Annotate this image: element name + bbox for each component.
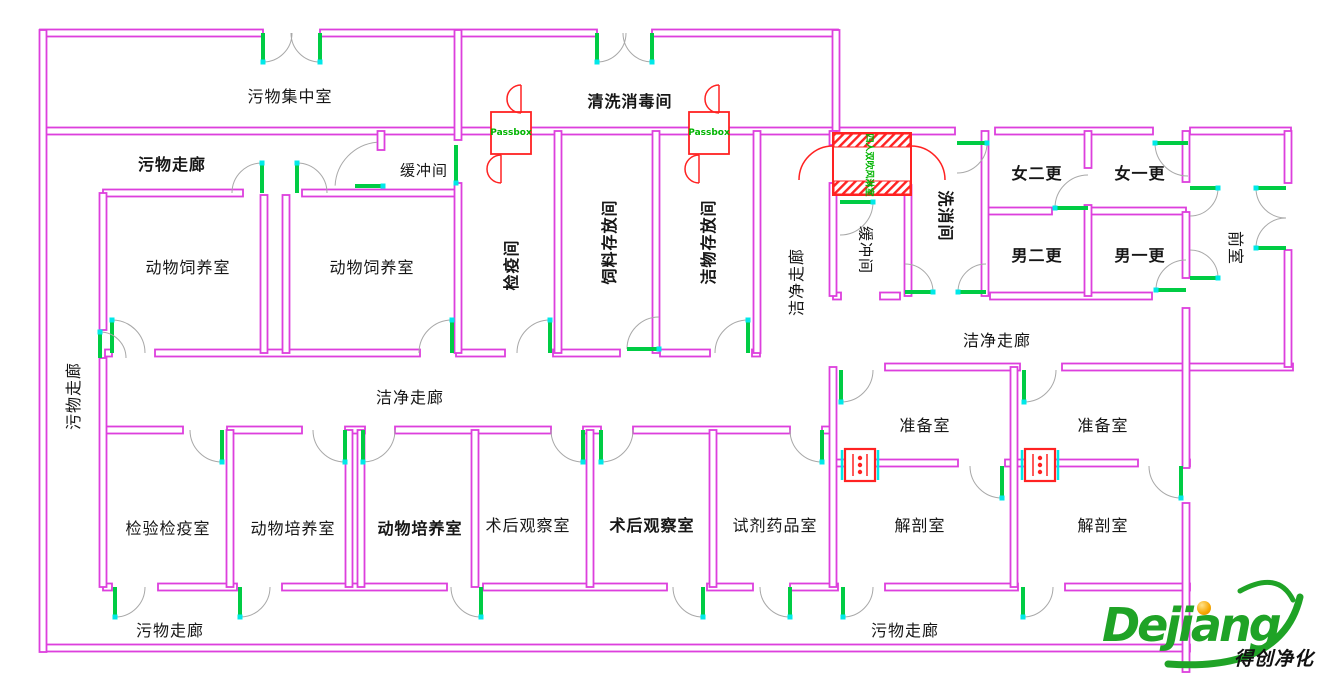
- wall-segment: [833, 30, 840, 131]
- transfer-window-dot: [858, 470, 862, 474]
- transfer-window-dot: [858, 463, 862, 467]
- door-swing-arc: [335, 142, 377, 185]
- door-leaf-tip: [318, 60, 323, 65]
- wall-segment: [40, 30, 47, 652]
- door-leaf-tip: [931, 290, 936, 295]
- wall-segment: [1183, 308, 1190, 468]
- wall-segment: [456, 350, 505, 357]
- wall-segment: [158, 584, 237, 591]
- wall-segment: [710, 430, 717, 587]
- wall-segment: [1285, 131, 1292, 183]
- corridor-label-waste-bottom-left: 污物走廊: [136, 617, 204, 641]
- door-leaf-tip: [595, 60, 600, 65]
- door-leaf-tip: [581, 460, 586, 465]
- door-swing-arc: [263, 33, 292, 62]
- door-swing-arc: [363, 430, 395, 462]
- door-leaf-tip: [956, 290, 961, 295]
- wall-segment: [990, 293, 1152, 300]
- door-leaf-tip: [381, 184, 386, 189]
- door-swing-arc: [297, 163, 327, 193]
- passbox-door-arc: [685, 155, 699, 183]
- room-label-dissection-1: 解剖室: [894, 512, 945, 536]
- wall-segment: [1085, 131, 1092, 168]
- door-leaf-tip: [1254, 246, 1259, 251]
- wall-segment: [1011, 367, 1018, 587]
- passbox-door-arc: [507, 85, 521, 113]
- door-swing-arc: [715, 320, 748, 353]
- wall-segment: [227, 430, 234, 587]
- wall-segment: [1183, 212, 1190, 278]
- door-leaf-tip: [261, 60, 266, 65]
- wall-segment: [1085, 205, 1092, 296]
- room-label-post-op-2: 术后观察室: [609, 512, 694, 536]
- door-leaf-tip: [260, 161, 265, 166]
- door-leaf-tip: [110, 318, 115, 323]
- door-swing-arc: [1256, 188, 1286, 218]
- transfer-window-dot: [1038, 456, 1042, 460]
- passbox-label-1: Passbox: [490, 128, 532, 138]
- door-swing-arc: [790, 430, 822, 462]
- door-leaf-tip: [599, 460, 604, 465]
- wall-segment: [472, 430, 479, 587]
- wall-segment: [40, 30, 263, 37]
- door-leaf-tip: [113, 615, 118, 620]
- door-leaf-tip: [650, 60, 655, 65]
- door-leaf-tip: [1000, 496, 1005, 501]
- wall-segment: [660, 350, 710, 357]
- wall-segment: [455, 183, 462, 353]
- wall-segment: [1183, 131, 1190, 182]
- room-label-animal-culture-1: 动物培养室: [250, 515, 335, 539]
- wall-segment: [261, 195, 268, 353]
- wall-segment: [653, 131, 660, 353]
- wall-segment: [830, 367, 837, 587]
- room-label-buffer-top: 缓冲间: [400, 160, 448, 181]
- logo-dot-icon: [1197, 601, 1211, 615]
- room-label-cleaning-disinfection: 清洗消毒间: [587, 88, 672, 112]
- door-leaf-tip: [98, 330, 103, 335]
- door-swing-arc: [190, 430, 222, 462]
- room-label-buffer-right: 缓冲间: [856, 226, 877, 274]
- door-leaf-tip: [1179, 496, 1184, 501]
- wall-segment: [1062, 364, 1293, 371]
- room-label-female-first-change: 女一更: [1114, 160, 1165, 184]
- wall-segment: [905, 185, 912, 296]
- wall-segment: [378, 131, 385, 150]
- door-leaf-tip: [479, 615, 484, 620]
- room-label-quarantine: 检疫间: [498, 239, 522, 290]
- corridor-label-waste-left: 污物走廊: [60, 362, 84, 430]
- wall-segment: [227, 427, 302, 434]
- wall-segment: [885, 364, 1020, 371]
- room-label-animal-breeding-1: 动物饲养室: [145, 254, 230, 278]
- wall-segment: [982, 131, 989, 296]
- room-label-male-first-change: 男一更: [1114, 242, 1165, 266]
- door-leaf-tip: [295, 161, 300, 166]
- room-label-animal-breeding-2: 动物饲养室: [329, 254, 414, 278]
- floor-plan: 污物集中室 清洗消毒间 污物走廊 缓冲间 动物饲养室 动物饲养室 检疫间 饲料存…: [0, 0, 1318, 675]
- door-leaf-tip: [238, 615, 243, 620]
- door-swing-arc: [240, 587, 270, 617]
- door-leaf-tip: [820, 460, 825, 465]
- door-leaf-tip: [839, 400, 844, 405]
- wall-segment: [754, 131, 761, 353]
- transfer-window-dot: [1038, 470, 1042, 474]
- wall-segment: [103, 190, 243, 197]
- door-leaf-tip: [871, 200, 876, 205]
- door-leaf-tip: [657, 347, 662, 352]
- door-leaf-tip: [343, 460, 348, 465]
- door-swing-arc: [970, 466, 1002, 498]
- door-swing-arc: [551, 430, 583, 462]
- door-swing-arc: [451, 587, 481, 617]
- door-leaf-tip: [548, 318, 553, 323]
- room-label-waste-collection: 污物集中室: [247, 83, 332, 107]
- wall-segment: [885, 584, 1018, 591]
- door-swing-arc: [1256, 218, 1286, 248]
- wall-segment: [1065, 584, 1190, 591]
- wall-segment: [100, 193, 107, 330]
- corridor-label-clean-vertical: 洁净走廊: [783, 248, 807, 316]
- wall-segment: [1285, 250, 1292, 367]
- door-swing-arc: [291, 33, 320, 62]
- door-swing-arc: [673, 587, 703, 617]
- wall-segment: [455, 30, 462, 140]
- door-swing-arc: [623, 33, 652, 62]
- logo-tagline: 得创净化: [1234, 644, 1314, 671]
- door-leaf-tip: [220, 460, 225, 465]
- room-label-anteroom: 前室: [1225, 231, 1249, 265]
- door-leaf-tip: [1216, 186, 1221, 191]
- door-swing-arc: [112, 320, 145, 353]
- wall-segment: [100, 358, 107, 587]
- corridor-label-clean-right: 洁净走廊: [963, 327, 1031, 351]
- door-leaf-tip: [1053, 206, 1058, 211]
- wall-segment: [283, 195, 290, 353]
- door-leaf-tip: [1021, 615, 1026, 620]
- wall-segment: [302, 190, 458, 197]
- wall-segment: [985, 208, 1052, 215]
- door-swing-arc: [232, 163, 262, 193]
- wall-segment: [995, 128, 1153, 135]
- door-swing-arc: [1023, 587, 1053, 617]
- room-label-post-op-1: 术后观察室: [485, 512, 570, 536]
- door-leaf-tip: [361, 460, 366, 465]
- door-leaf-tip: [701, 615, 706, 620]
- wall-segment: [1088, 208, 1186, 215]
- passbox-door-arc: [705, 85, 719, 113]
- door-leaf-tip: [1254, 186, 1259, 191]
- wall-segment: [880, 293, 900, 300]
- room-label-feed-storage: 饲料存放间: [596, 199, 620, 284]
- door-swing-arc: [115, 587, 145, 617]
- door-leaf-tip: [1022, 400, 1027, 405]
- door-swing-arc: [841, 370, 873, 402]
- room-label-reagent: 试剂药品室: [732, 512, 817, 536]
- door-leaf-tip: [454, 181, 459, 186]
- air-shower-door-arc: [799, 146, 833, 180]
- door-swing-arc: [1190, 188, 1218, 216]
- wall-segment: [555, 131, 562, 353]
- corridor-label-waste-top: 污物走廊: [138, 151, 206, 175]
- door-swing-arc: [1190, 250, 1218, 278]
- wall-segment: [587, 430, 594, 587]
- door-leaf-tip: [841, 615, 846, 620]
- room-label-washing: 洗消间: [935, 190, 959, 241]
- door-leaf-tip: [788, 615, 793, 620]
- transfer-window-dot: [858, 456, 862, 460]
- room-label-animal-culture-2: 动物培养室: [377, 515, 462, 539]
- wall-segment: [103, 427, 183, 434]
- door-swing-arc: [313, 430, 345, 462]
- wall-segment: [40, 645, 1190, 652]
- door-swing-arc: [760, 587, 790, 617]
- door-swing-arc: [843, 587, 873, 617]
- door-swing-arc: [597, 33, 626, 62]
- door-leaf-tip: [746, 318, 751, 323]
- wall-segment: [652, 30, 838, 37]
- door-swing-arc: [517, 320, 550, 353]
- door-swing-arc: [1149, 466, 1181, 498]
- corridor-label-clean-middle: 洁净走廊: [376, 384, 444, 408]
- door-swing-arc: [419, 320, 452, 353]
- room-label-prep-2: 准备室: [1077, 412, 1128, 436]
- door-leaf-tip: [1153, 141, 1158, 146]
- room-label-female-second-change: 女二更: [1011, 160, 1062, 184]
- wall-segment: [1190, 128, 1291, 135]
- room-label-prep-1: 准备室: [899, 412, 950, 436]
- room-label-clean-storage: 洁物存放间: [695, 199, 719, 284]
- air-shower-door-arc: [911, 146, 945, 180]
- door-leaf-tip: [985, 141, 990, 146]
- wall-segment: [483, 584, 667, 591]
- door-leaf-tip: [1154, 288, 1159, 293]
- wall-segment: [553, 350, 620, 357]
- door-swing-arc: [601, 430, 633, 462]
- door-swing-arc: [1024, 370, 1056, 402]
- air-shower-label: 四人双吹风淋室: [864, 133, 877, 196]
- passbox-label-2: Passbox: [688, 128, 730, 138]
- corridor-label-waste-bottom-right: 污物走廊: [871, 617, 939, 641]
- door-leaf-tip: [450, 318, 455, 323]
- room-label-inspection-quarantine: 检验检疫室: [125, 515, 210, 539]
- transfer-window-dot: [1038, 463, 1042, 467]
- door-leaf-tip: [1216, 276, 1221, 281]
- room-label-dissection-2: 解剖室: [1077, 512, 1128, 536]
- room-label-male-second-change: 男二更: [1011, 242, 1062, 266]
- wall-segment: [830, 183, 837, 296]
- passbox-door-arc: [487, 155, 501, 183]
